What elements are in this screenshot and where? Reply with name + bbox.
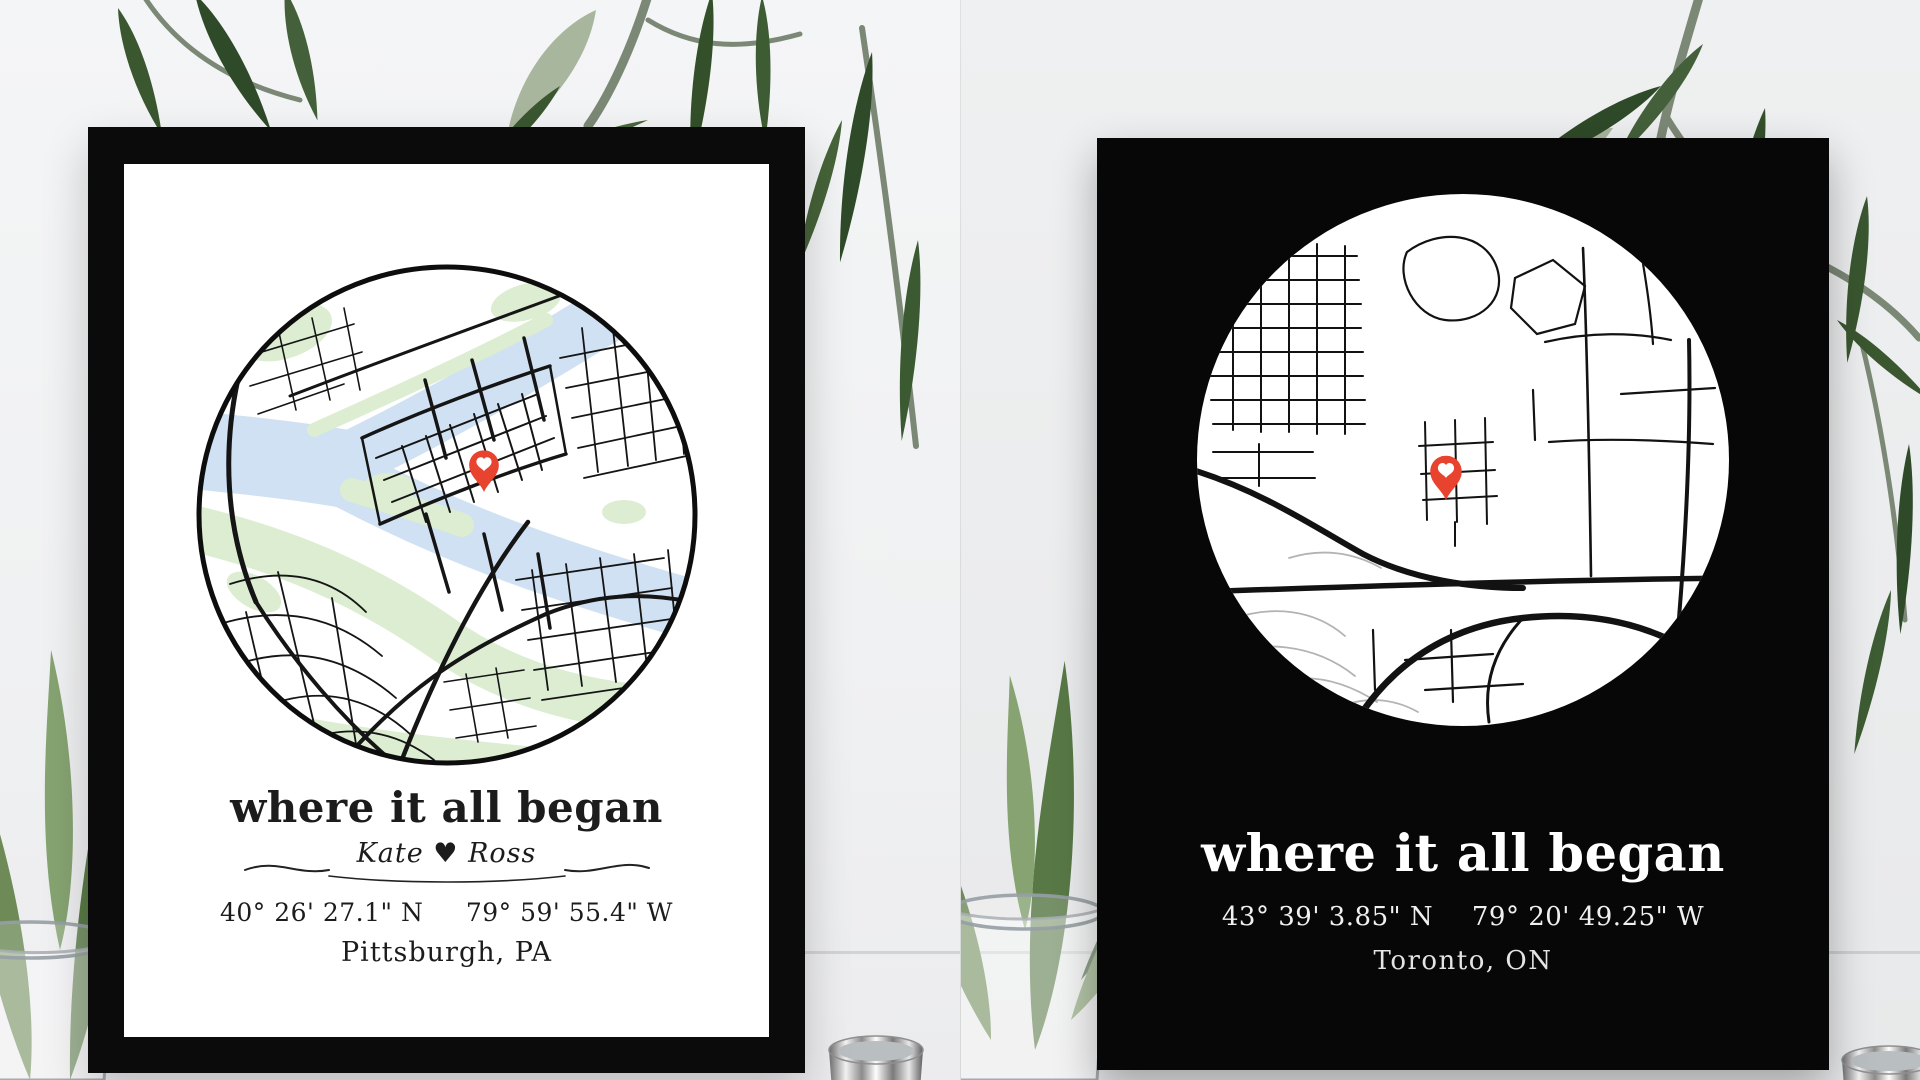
print-title: where it all began [1097,828,1829,882]
left-photo: where it all began Kate ♥ Ross 40° 26' 2… [0,0,960,1080]
print-paper: where it all began Kate ♥ Ross 40° 26' 2… [124,164,769,1037]
longitude: 79° 59' 55.4" W [466,898,673,927]
silver-cup [829,1036,923,1080]
framed-map-print-pittsburgh: where it all began Kate ♥ Ross 40° 26' 2… [88,127,805,1073]
print-caption: where it all began Kate ♥ Ross 40° 26' 2… [124,786,769,968]
location-label: Toronto, ON [1097,946,1829,976]
location-label: Pittsburgh, PA [124,937,769,968]
pittsburgh-street-map [194,262,700,768]
black-poster-map-print-toronto: where it all began 43° 39' 3.85" N 79° 2… [1097,138,1829,1070]
latitude: 40° 26' 27.1" N [220,898,423,927]
print-caption: where it all began 43° 39' 3.85" N 79° 2… [1097,828,1829,976]
couple-names-text: Kate ♥ Ross [357,838,537,869]
coordinates: 40° 26' 27.1" N 79° 59' 55.4" W [124,898,769,927]
toronto-street-map [1193,190,1733,730]
right-photo: where it all began 43° 39' 3.85" N 79° 2… [960,0,1920,1080]
product-photo-two-map-prints: where it all began Kate ♥ Ross 40° 26' 2… [0,0,1920,1080]
coordinates: 43° 39' 3.85" N 79° 20' 49.25" W [1097,902,1829,932]
longitude: 79° 20' 49.25" W [1472,902,1704,932]
latitude: 43° 39' 3.85" N [1222,902,1433,932]
silver-cup [1842,1046,1920,1080]
couple-names: Kate ♥ Ross [124,836,769,888]
print-title: where it all began [124,786,769,830]
